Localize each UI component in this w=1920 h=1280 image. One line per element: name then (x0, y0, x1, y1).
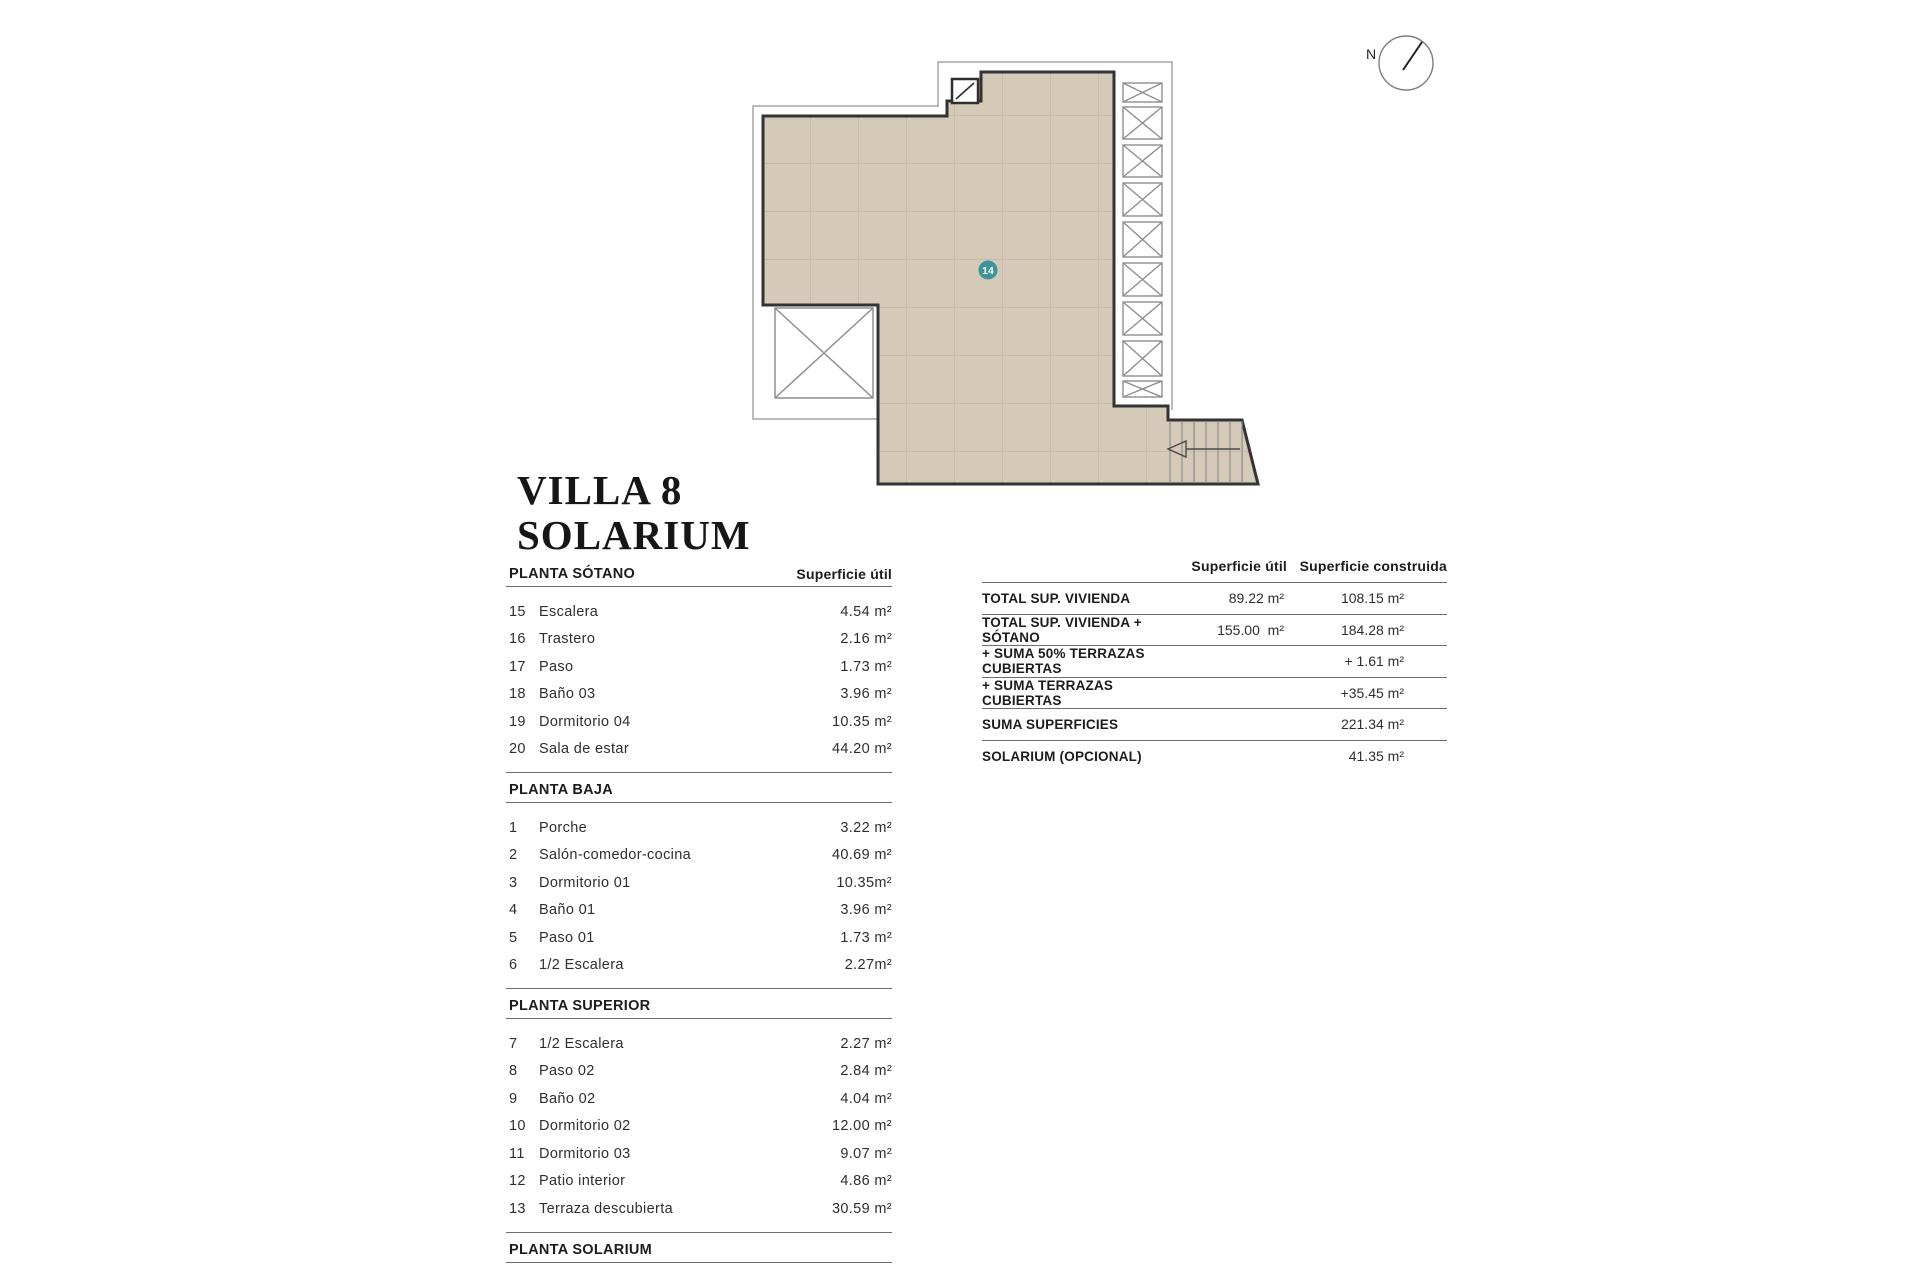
room-label: Paso 02 (539, 1063, 840, 1079)
summary-util-value: 155.00 m² (1182, 622, 1287, 638)
table-row: 19Dormitorio 0410.35 m² (506, 708, 892, 736)
room-number: 6 (506, 957, 539, 973)
solarium-floor-plan: 14 N (0, 0, 1920, 1280)
compass-north-label: N (1366, 46, 1376, 62)
room-label: Dormitorio 03 (539, 1146, 840, 1162)
summary-label: + SUMA TERRAZAS CUBIERTAS (982, 678, 1182, 708)
room-label: Dormitorio 02 (539, 1118, 832, 1134)
room-number: 9 (506, 1091, 539, 1107)
section-title: PLANTA SÓTANO (509, 566, 635, 582)
room-number: 17 (506, 659, 539, 675)
section-header: PLANTA SOLARIUM (506, 1242, 892, 1263)
section-header: PLANTA SUPERIOR (506, 998, 892, 1019)
section-planta-sotano: PLANTA SÓTANO Superficie útil 15Escalera… (506, 566, 892, 773)
room-number: 7 (506, 1036, 539, 1052)
room-area: 2.84 m² (840, 1063, 892, 1079)
room-area: 30.59 m² (832, 1201, 892, 1217)
page-title: VILLA 8 SOLARIUM (517, 468, 751, 558)
table-row: 8Paso 022.84 m² (506, 1058, 892, 1086)
room-area: 1.73 m² (840, 659, 892, 675)
table-row: 61/2 Escalera2.27m² (506, 952, 892, 980)
summary-construida-value: +35.45 m² (1287, 685, 1447, 701)
pergola-beams (1123, 83, 1162, 397)
summary-row: + SUMA TERRAZAS CUBIERTAS +35.45 m² (982, 678, 1447, 710)
table-row: 20Sala de estar44.20 m² (506, 736, 892, 764)
table-row: 9Baño 024.04 m² (506, 1085, 892, 1113)
void-cross-box (775, 308, 873, 398)
table-row: 10Dormitorio 0212.00 m² (506, 1113, 892, 1141)
room-label: Baño 01 (539, 902, 840, 918)
room-number: 12 (506, 1173, 539, 1189)
superficie-util-column-header: Superficie útil (796, 566, 892, 582)
room-number: 4 (506, 902, 539, 918)
section-header: PLANTA BAJA (506, 782, 892, 803)
terrace-floor (763, 72, 1258, 484)
summary-label: TOTAL SUP. VIVIENDA (982, 591, 1182, 606)
section-title: PLANTA SUPERIOR (509, 998, 650, 1014)
room-number: 18 (506, 686, 539, 702)
table-row: 4Baño 013.96 m² (506, 897, 892, 925)
summary-row: SOLARIUM (OPCIONAL) 41.35 m² (982, 741, 1447, 773)
page-title-line1: VILLA 8 (517, 468, 751, 513)
room-area: 44.20 m² (832, 741, 892, 757)
room-area: 10.35m² (836, 875, 892, 891)
room-number: 8 (506, 1063, 539, 1079)
room-label: Trastero (539, 631, 840, 647)
table-row: 5Paso 011.73 m² (506, 924, 892, 952)
room-label: Salón-comedor-cocina (539, 847, 832, 863)
table-row: 2Salón-comedor-cocina40.69 m² (506, 842, 892, 870)
room-area: 2.27m² (845, 957, 892, 973)
summary-construida-value: 41.35 m² (1287, 748, 1447, 764)
room-number: 2 (506, 847, 539, 863)
table-row: 1Porche3.22 m² (506, 814, 892, 842)
section-planta-superior: PLANTA SUPERIOR 71/2 Escalera2.27 m² 8Pa… (506, 998, 892, 1233)
page: 14 N VILLA 8 SOLARIUM PLANTA SÓTANO Supe… (0, 0, 1920, 1280)
summary-util-value: 89.22 m² (1182, 590, 1287, 606)
room-areas-table: PLANTA SÓTANO Superficie útil 15Escalera… (506, 566, 892, 1280)
section-rows: 15Escalera4.54 m² 16Trastero2.16 m² 17Pa… (506, 587, 892, 773)
summary-label: SUMA SUPERFICIES (982, 717, 1182, 732)
summary-row: + SUMA 50% TERRAZAS CUBIERTAS + 1.61 m² (982, 646, 1447, 678)
table-row: 16Trastero2.16 m² (506, 626, 892, 654)
compass: N (1366, 36, 1433, 90)
room-number: 1 (506, 820, 539, 836)
summary-label: TOTAL SUP. VIVIENDA + SÓTANO (982, 615, 1182, 645)
room-label: Baño 02 (539, 1091, 840, 1107)
room-area: 10.35 m² (832, 714, 892, 730)
superficie-construida-header: Superficie construida (1287, 558, 1447, 574)
room-number: 19 (506, 714, 539, 730)
section-planta-solarium: PLANTA SOLARIUM 14SOLARIUM41.35 m² (506, 1242, 892, 1280)
room-label: Porche (539, 820, 840, 836)
room-label: Terraza descubierta (539, 1201, 832, 1217)
room-label: Patio interior (539, 1173, 840, 1189)
summary-row: TOTAL SUP. VIVIENDA 89.22 m² 108.15 m² (982, 583, 1447, 615)
room-area: 4.86 m² (840, 1173, 892, 1189)
room-area: 4.54 m² (840, 604, 892, 620)
room-number: 15 (506, 604, 539, 620)
skylight-icon (952, 79, 978, 103)
section-title: PLANTA SOLARIUM (509, 1242, 652, 1258)
table-row: 13Terraza descubierta30.59 m² (506, 1195, 892, 1223)
room-label: 1/2 Escalera (539, 957, 845, 973)
table-row: 3Dormitorio 0110.35m² (506, 869, 892, 897)
table-row: 15Escalera4.54 m² (506, 598, 892, 626)
summary-construida-value: + 1.61 m² (1287, 653, 1447, 669)
summary-header-row: Superficie útil Superficie construida (982, 558, 1447, 583)
room-area: 1.73 m² (840, 930, 892, 946)
room-number: 5 (506, 930, 539, 946)
room-badge: 14 (979, 261, 998, 280)
table-row: 14SOLARIUM41.35 m² (506, 1274, 892, 1280)
room-number: 16 (506, 631, 539, 647)
section-rows: 1Porche3.22 m² 2Salón-comedor-cocina40.6… (506, 803, 892, 989)
table-row: 11Dormitorio 039.07 m² (506, 1140, 892, 1168)
room-number: 11 (506, 1146, 539, 1162)
room-area: 2.16 m² (840, 631, 892, 647)
room-number: 3 (506, 875, 539, 891)
room-area: 40.69 m² (832, 847, 892, 863)
room-area: 2.27 m² (840, 1036, 892, 1052)
room-area: 9.07 m² (840, 1146, 892, 1162)
room-label: Baño 03 (539, 686, 840, 702)
room-area: 3.96 m² (840, 686, 892, 702)
summary-construida-value: 221.34 m² (1287, 716, 1447, 732)
room-label: Dormitorio 04 (539, 714, 832, 730)
summary-construida-value: 184.28 m² (1287, 622, 1447, 638)
room-number: 13 (506, 1201, 539, 1217)
table-row: 12Patio interior4.86 m² (506, 1168, 892, 1196)
room-label: Paso 01 (539, 930, 840, 946)
room-label: Sala de estar (539, 741, 832, 757)
section-header: PLANTA SÓTANO Superficie útil (506, 566, 892, 587)
room-badge-number: 14 (982, 265, 994, 277)
table-row: 17Paso1.73 m² (506, 653, 892, 681)
table-row: 71/2 Escalera2.27 m² (506, 1030, 892, 1058)
summary-label: + SUMA 50% TERRAZAS CUBIERTAS (982, 646, 1182, 676)
room-area: 4.04 m² (840, 1091, 892, 1107)
surface-summary-table: Superficie útil Superficie construida TO… (982, 558, 1447, 772)
summary-row: TOTAL SUP. VIVIENDA + SÓTANO 155.00 m² 1… (982, 615, 1447, 647)
room-area: 12.00 m² (832, 1118, 892, 1134)
table-row: 18Baño 033.96 m² (506, 681, 892, 709)
section-title: PLANTA BAJA (509, 782, 613, 798)
room-label: 1/2 Escalera (539, 1036, 840, 1052)
room-area: 3.96 m² (840, 902, 892, 918)
room-number: 10 (506, 1118, 539, 1134)
room-label: Dormitorio 01 (539, 875, 836, 891)
room-area: 3.22 m² (840, 820, 892, 836)
summary-label: SOLARIUM (OPCIONAL) (982, 749, 1182, 764)
room-label: Escalera (539, 604, 840, 620)
summary-construida-value: 108.15 m² (1287, 590, 1447, 606)
section-rows: 71/2 Escalera2.27 m² 8Paso 022.84 m² 9Ba… (506, 1019, 892, 1233)
superficie-util-header: Superficie útil (1182, 558, 1287, 574)
summary-row: SUMA SUPERFICIES 221.34 m² (982, 709, 1447, 741)
room-label: Paso (539, 659, 840, 675)
section-rows: 14SOLARIUM41.35 m² (506, 1263, 892, 1280)
page-title-line2: SOLARIUM (517, 513, 751, 558)
section-planta-baja: PLANTA BAJA 1Porche3.22 m² 2Salón-comedo… (506, 782, 892, 989)
room-number: 20 (506, 741, 539, 757)
